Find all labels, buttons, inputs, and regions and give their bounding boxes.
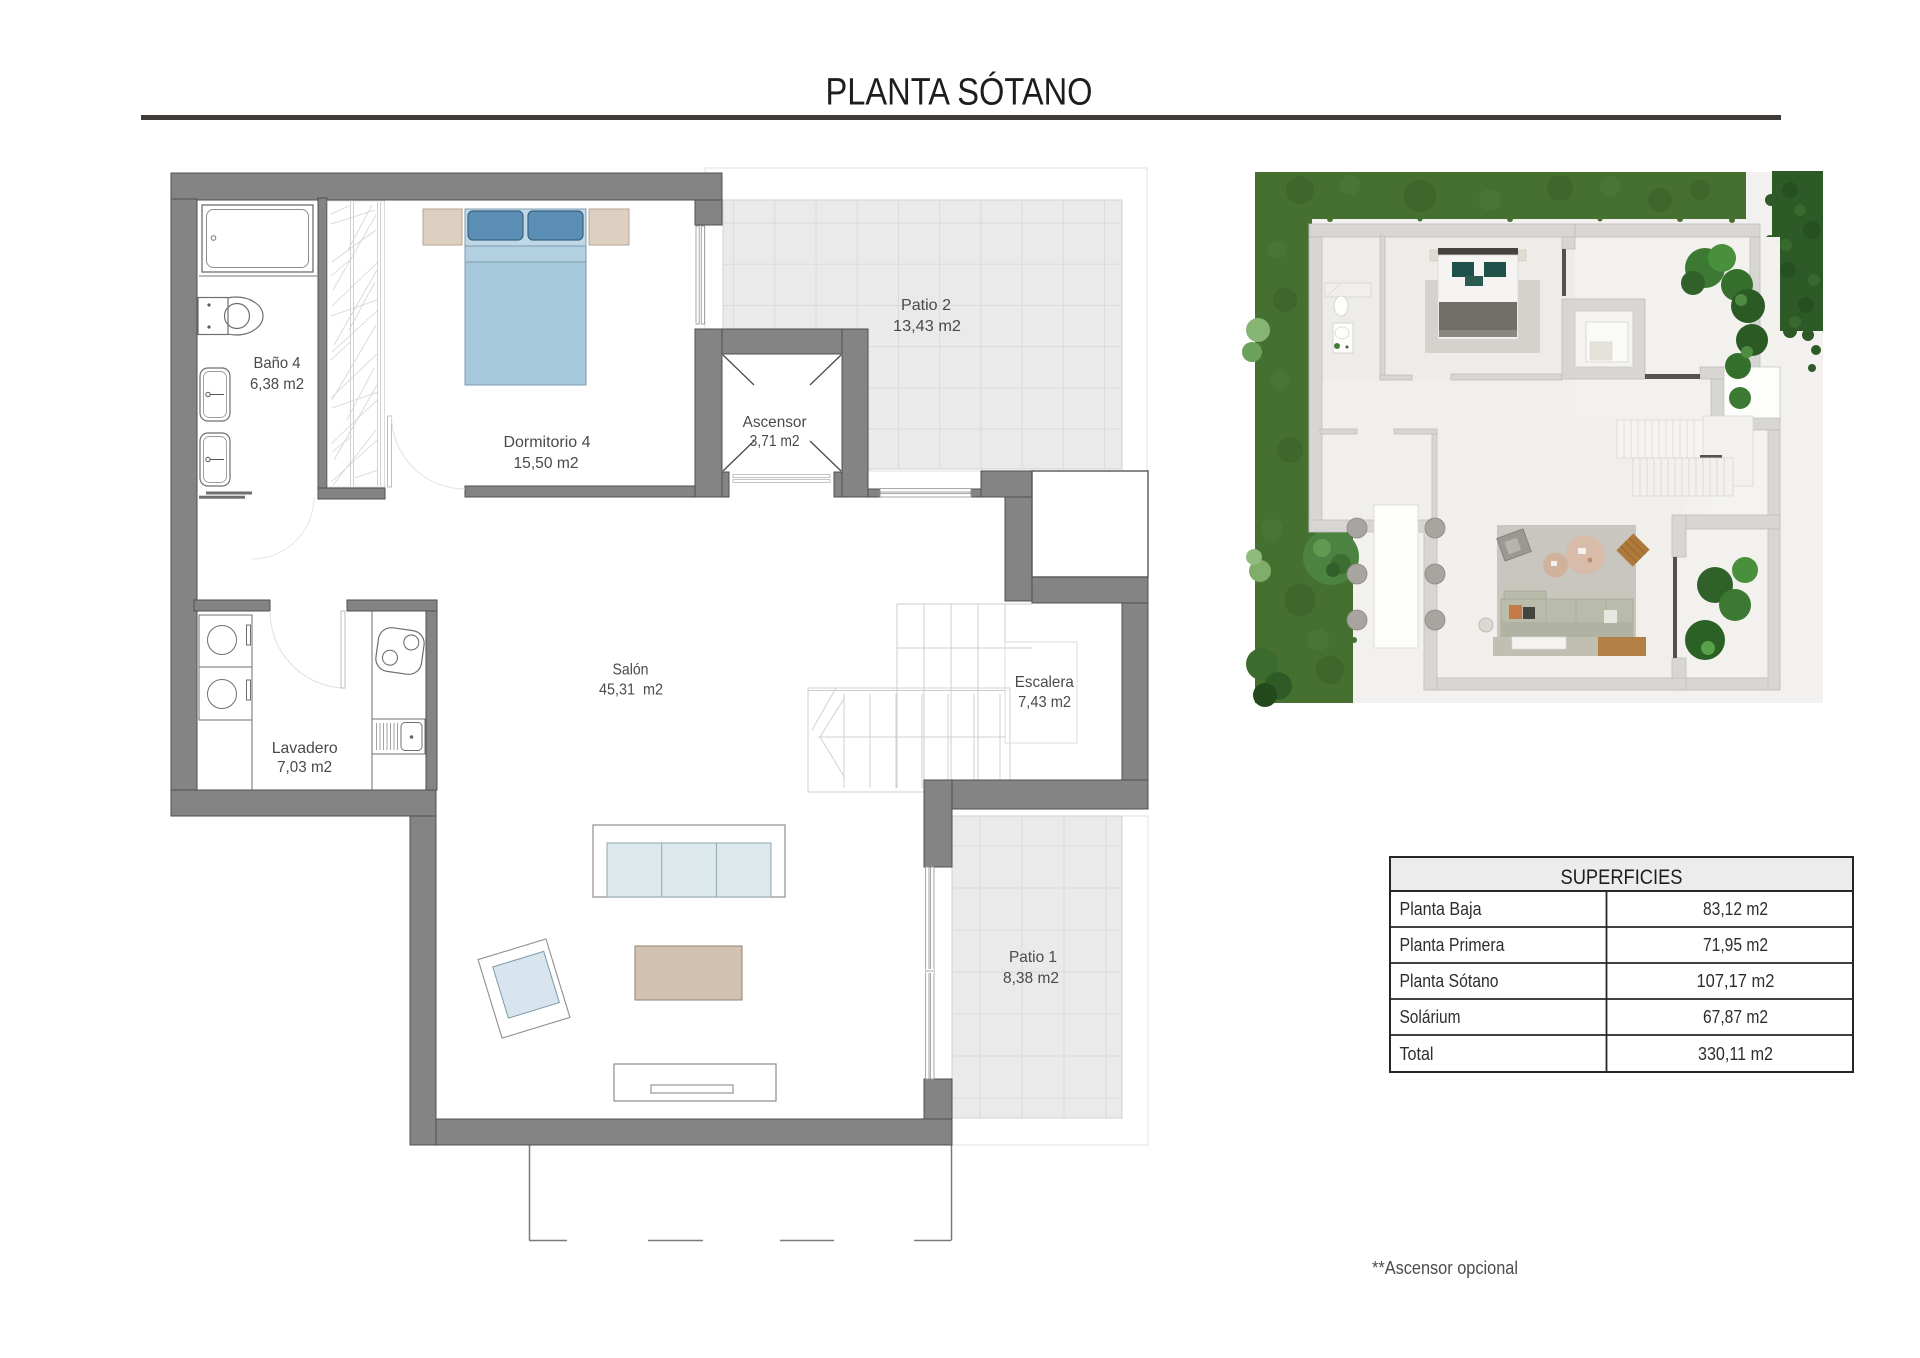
- svg-text:8,38 m2: 8,38 m2: [1003, 970, 1059, 987]
- svg-text:**Ascensor opcional: **Ascensor opcional: [1372, 1258, 1518, 1278]
- svg-text:3,71 m2: 3,71 m2: [750, 433, 800, 450]
- svg-text:7,03 m2: 7,03 m2: [277, 759, 332, 776]
- svg-text:13,43 m2: 13,43 m2: [893, 318, 961, 335]
- svg-text:67,87 m2: 67,87 m2: [1703, 1006, 1768, 1027]
- svg-text:7,43 m2: 7,43 m2: [1018, 694, 1071, 711]
- svg-text:Baño 4: Baño 4: [254, 355, 301, 372]
- svg-text:15,50 m2: 15,50 m2: [514, 455, 579, 472]
- svg-text:Planta Primera: Planta Primera: [1400, 934, 1506, 955]
- svg-text:45,31 m2: 45,31 m2: [599, 682, 663, 699]
- svg-text:Dormitorio 4: Dormitorio 4: [504, 434, 591, 451]
- svg-text:Planta Baja: Planta Baja: [1400, 898, 1483, 919]
- svg-text:Total: Total: [1400, 1043, 1434, 1064]
- svg-text:Salón: Salón: [613, 662, 649, 679]
- svg-text:Lavadero: Lavadero: [272, 740, 338, 757]
- svg-text:107,17 m2: 107,17 m2: [1697, 970, 1775, 991]
- svg-text:6,38 m2: 6,38 m2: [250, 376, 304, 393]
- svg-text:330,11 m2: 330,11 m2: [1698, 1043, 1773, 1064]
- svg-text:PLANTA SÓTANO: PLANTA SÓTANO: [826, 71, 1093, 114]
- svg-text:SUPERFICIES: SUPERFICIES: [1561, 865, 1683, 889]
- svg-text:Ascensor: Ascensor: [743, 414, 808, 431]
- svg-text:71,95 m2: 71,95 m2: [1703, 934, 1768, 955]
- svg-text:Patio 2: Patio 2: [901, 297, 951, 314]
- svg-text:Patio 1: Patio 1: [1009, 949, 1057, 966]
- svg-text:Escalera: Escalera: [1015, 674, 1074, 691]
- svg-text:Planta Sótano: Planta Sótano: [1400, 970, 1499, 991]
- svg-text:Solárium: Solárium: [1400, 1006, 1461, 1027]
- svg-text:83,12 m2: 83,12 m2: [1703, 898, 1768, 919]
